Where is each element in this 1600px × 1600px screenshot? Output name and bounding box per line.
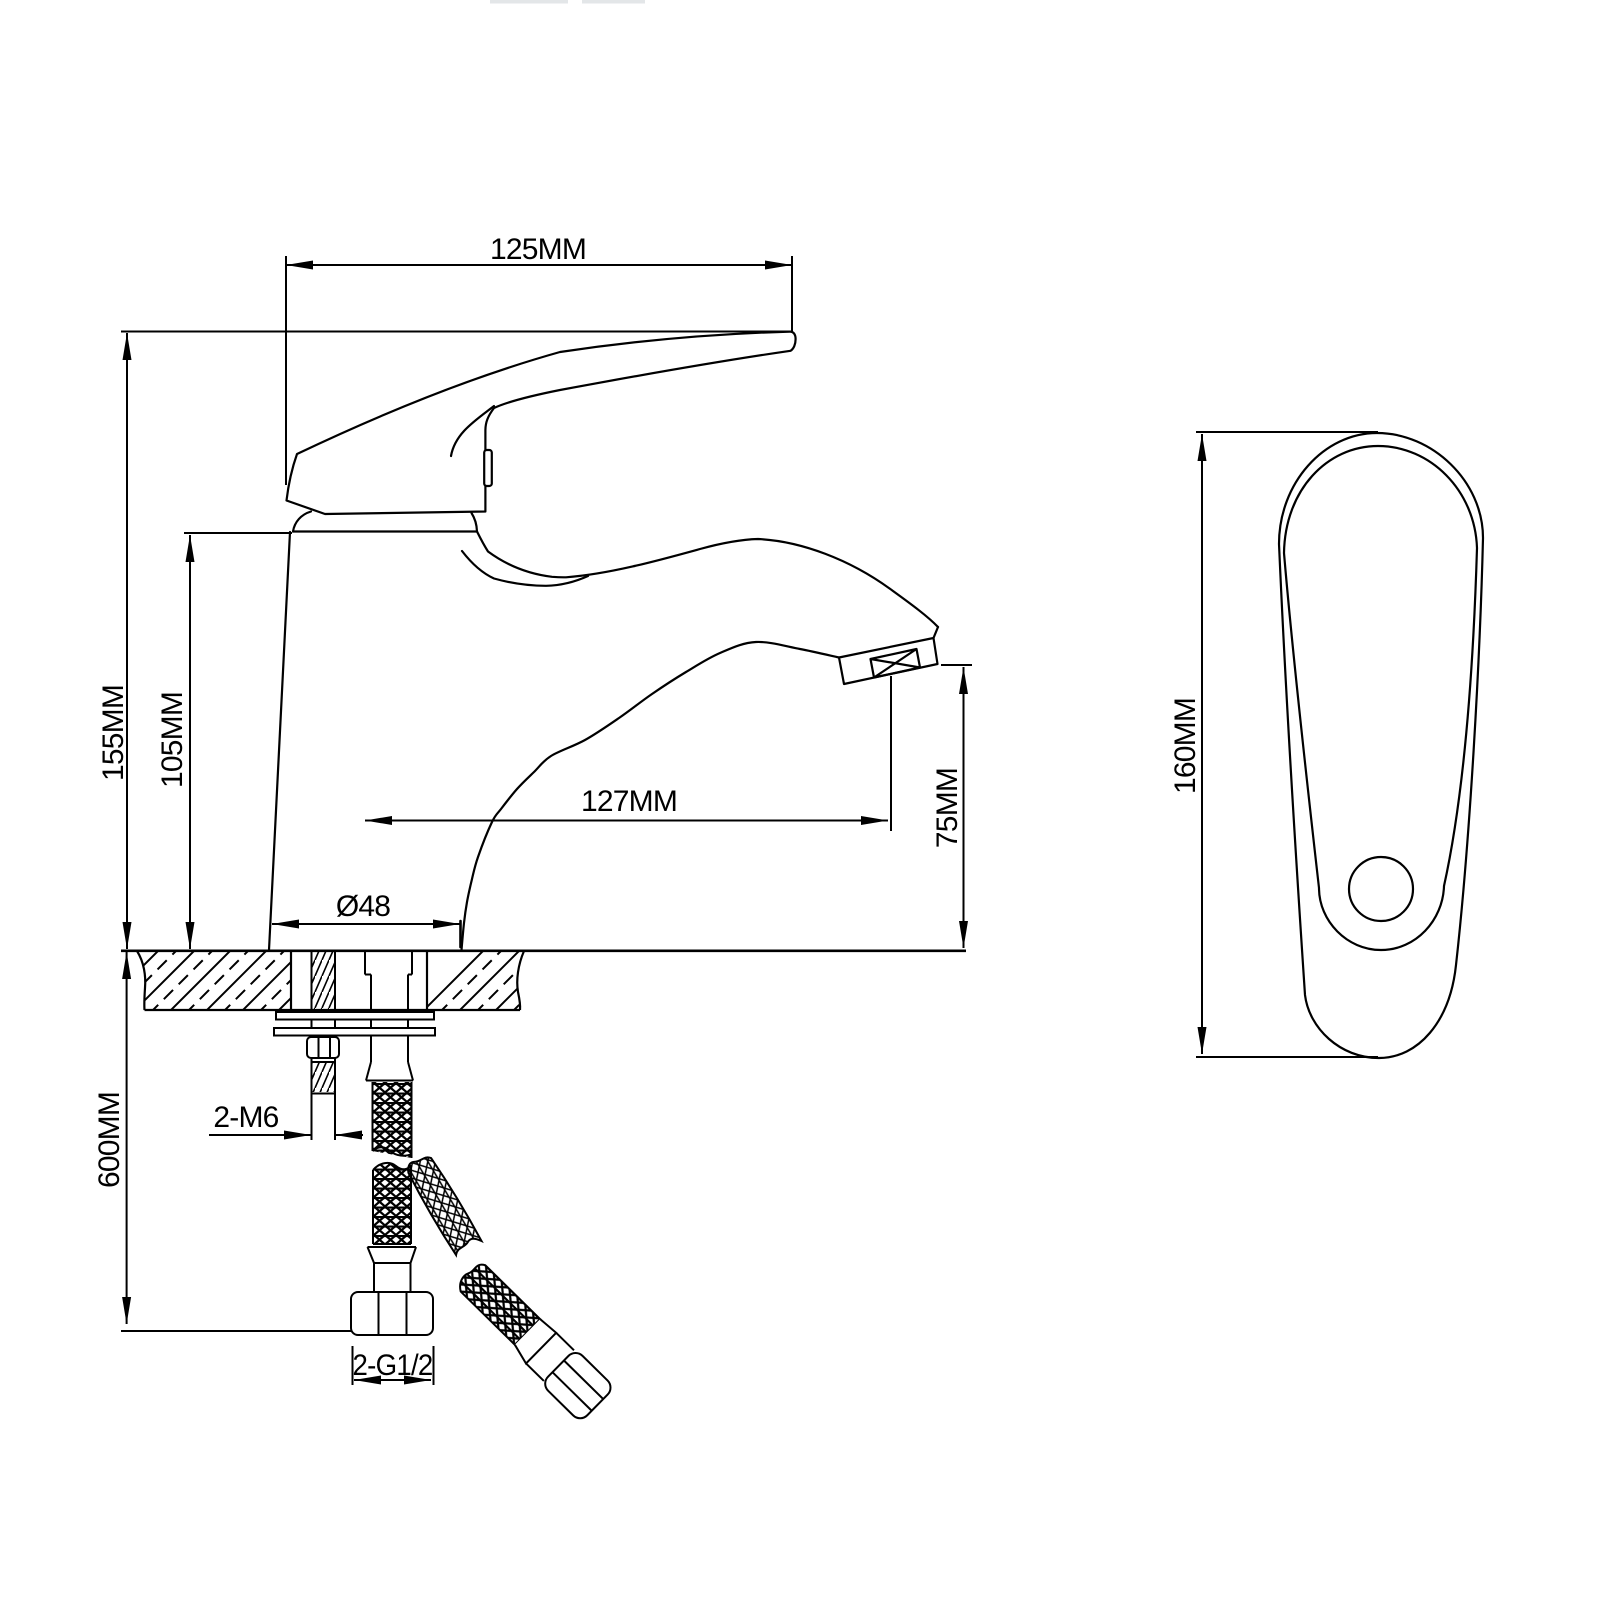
svg-text:105MM: 105MM — [156, 692, 189, 788]
svg-text:600MM: 600MM — [93, 1092, 126, 1188]
svg-text:2-M6: 2-M6 — [213, 1101, 278, 1134]
svg-text:127MM: 127MM — [581, 785, 677, 818]
svg-text:75MM: 75MM — [931, 768, 964, 848]
svg-text:155MM: 155MM — [97, 685, 130, 781]
svg-text:160MM: 160MM — [1169, 698, 1202, 794]
svg-text:Ø48: Ø48 — [336, 890, 390, 923]
svg-text:2-G1/2: 2-G1/2 — [353, 1349, 433, 1382]
svg-text:125MM: 125MM — [490, 233, 586, 266]
